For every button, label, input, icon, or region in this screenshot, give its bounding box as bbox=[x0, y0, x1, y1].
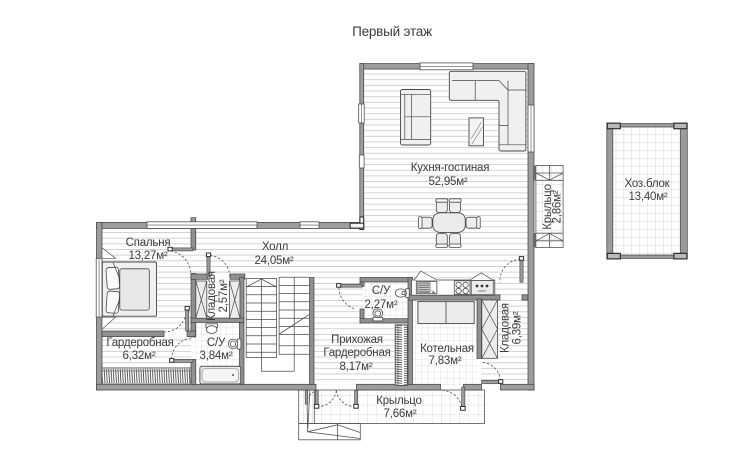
svg-text:С/У: С/У bbox=[372, 285, 391, 297]
svg-text:Гардеробная: Гардеробная bbox=[106, 337, 173, 349]
svg-text:Котельная: Котельная bbox=[420, 343, 474, 355]
svg-text:6,39м²: 6,39м² bbox=[512, 311, 524, 344]
svg-text:Гардеробная: Гардеробная bbox=[323, 347, 390, 359]
svg-text:2,27м²: 2,27м² bbox=[365, 299, 398, 311]
svg-text:7,66м²: 7,66м² bbox=[384, 408, 417, 420]
svg-text:Хоз.блок: Хоз.блок bbox=[624, 178, 670, 190]
svg-text:Кладовая: Кладовая bbox=[206, 271, 218, 321]
svg-text:Прихожая: Прихожая bbox=[331, 334, 383, 346]
svg-text:Спальня: Спальня bbox=[126, 237, 171, 249]
svg-text:2,86м²: 2,86м² bbox=[552, 190, 564, 223]
svg-text:Кухня-гостиная: Кухня-гостиная bbox=[411, 162, 490, 174]
svg-text:Кладовая: Кладовая bbox=[500, 303, 512, 353]
svg-text:13,27м²: 13,27м² bbox=[128, 250, 167, 262]
svg-text:24,05м²: 24,05м² bbox=[254, 255, 293, 267]
svg-text:3,84м²: 3,84м² bbox=[200, 350, 233, 362]
svg-text:8,17м²: 8,17м² bbox=[340, 361, 373, 373]
svg-text:С/У: С/У bbox=[207, 337, 226, 349]
svg-text:Крыльцо: Крыльцо bbox=[376, 395, 422, 407]
svg-text:Холл: Холл bbox=[262, 241, 288, 253]
svg-text:13,40м²: 13,40м² bbox=[628, 191, 667, 203]
svg-text:6,32м²: 6,32м² bbox=[123, 350, 156, 362]
svg-text:Первый этаж: Первый этаж bbox=[352, 24, 432, 39]
svg-text:52,95м²: 52,95м² bbox=[428, 176, 467, 188]
svg-text:7,83м²: 7,83м² bbox=[429, 355, 462, 367]
svg-text:2,57м²: 2,57м² bbox=[218, 279, 230, 312]
